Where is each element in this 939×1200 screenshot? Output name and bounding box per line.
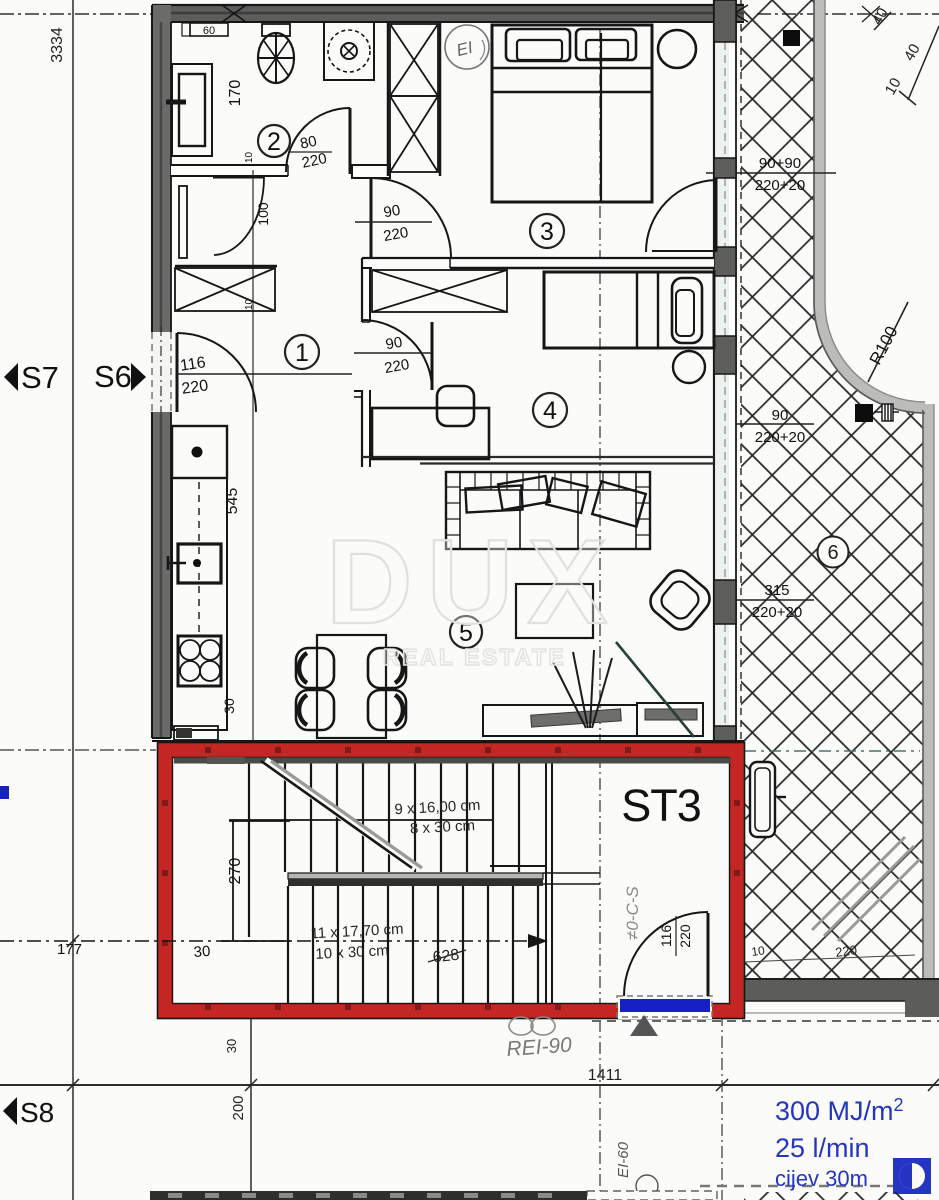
- svg-text:90+90: 90+90: [759, 155, 801, 172]
- svg-text:170: 170: [227, 80, 244, 107]
- svg-text:ST3: ST3: [621, 780, 701, 831]
- svg-text:6: 6: [827, 542, 838, 564]
- svg-text:60: 60: [203, 25, 215, 37]
- svg-text:220+20: 220+20: [755, 429, 805, 446]
- svg-text:10: 10: [750, 943, 765, 959]
- svg-text:8 x 30 cm: 8 x 30 cm: [410, 817, 476, 837]
- svg-text:3: 3: [540, 218, 554, 246]
- svg-text:116: 116: [658, 925, 674, 948]
- svg-text:200: 200: [230, 1095, 247, 1120]
- svg-text:100: 100: [255, 202, 271, 226]
- svg-text:REI-90: REI-90: [506, 1033, 573, 1061]
- svg-text:1411: 1411: [588, 1067, 623, 1084]
- svg-text:300 MJ/m2: 300 MJ/m2: [775, 1095, 904, 1126]
- svg-text:220: 220: [677, 924, 693, 948]
- svg-text:4: 4: [543, 397, 557, 425]
- svg-text:1: 1: [295, 339, 309, 367]
- svg-text:REAL ESTATE: REAL ESTATE: [383, 644, 566, 670]
- svg-text:315: 315: [764, 582, 789, 599]
- svg-text:2: 2: [267, 128, 281, 156]
- svg-text:90: 90: [382, 202, 401, 222]
- svg-text:10: 10: [244, 151, 255, 163]
- svg-text:90: 90: [384, 334, 403, 354]
- svg-text:3334: 3334: [49, 27, 66, 63]
- svg-text:270: 270: [227, 858, 244, 885]
- svg-text:S8: S8: [20, 1097, 54, 1128]
- svg-text:EI-60: EI-60: [615, 1141, 632, 1178]
- svg-text:S6: S6: [94, 359, 132, 394]
- svg-text:S7: S7: [21, 360, 59, 395]
- svg-text:≠0-C-S: ≠0-C-S: [623, 886, 642, 940]
- svg-text:30: 30: [193, 943, 211, 961]
- svg-text:220+20: 220+20: [755, 177, 805, 194]
- svg-text:DUX: DUX: [326, 515, 621, 649]
- svg-text:220+20: 220+20: [752, 604, 802, 621]
- svg-text:cijev 30m: cijev 30m: [775, 1166, 868, 1191]
- svg-text:545: 545: [224, 488, 241, 515]
- svg-text:25 l/min: 25 l/min: [775, 1133, 870, 1163]
- svg-text:30: 30: [224, 1039, 239, 1053]
- svg-text:30: 30: [221, 698, 237, 714]
- svg-text:80: 80: [299, 133, 319, 153]
- svg-text:90: 90: [772, 407, 789, 424]
- svg-text:116: 116: [179, 354, 207, 374]
